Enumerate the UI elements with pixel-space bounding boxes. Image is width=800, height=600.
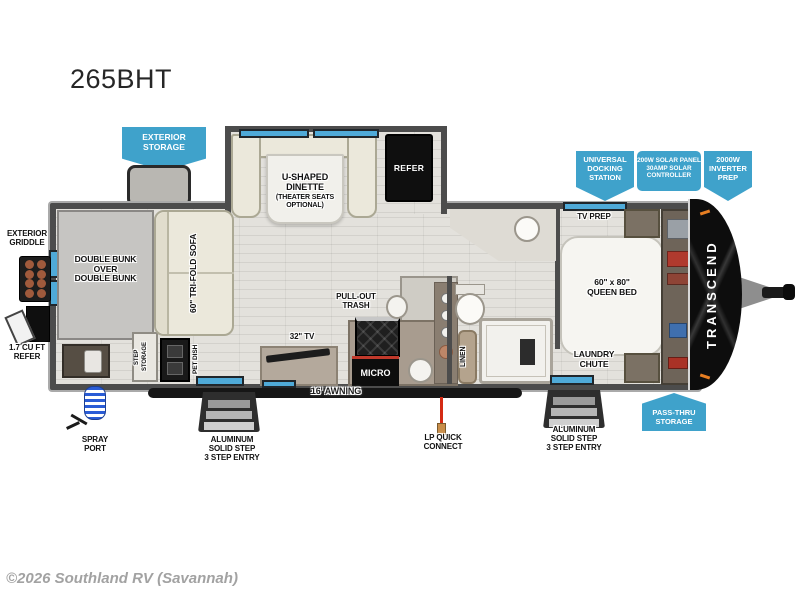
step-tread — [204, 422, 254, 430]
floorplan-265bht: 265BHT EXTERIOR STORAGE UNIVERSAL DOCKIN… — [0, 0, 800, 600]
hitch-coupler — [783, 284, 795, 300]
page-title: 265BHT — [70, 64, 172, 95]
sofa-label: 60" TRI-FOLD SOFA — [189, 214, 203, 332]
shower — [479, 318, 553, 384]
nightstand-bottom — [624, 353, 660, 383]
tv-32-label: 32" TV — [280, 333, 324, 342]
step-tread — [206, 411, 252, 419]
refer-label: REFER — [394, 163, 424, 173]
griddle-burner — [37, 260, 46, 269]
entry-step-left — [198, 392, 260, 432]
dinette-label: U-SHAPED DINETTE — [272, 172, 338, 192]
step-tread — [553, 397, 595, 405]
shower-glass — [486, 325, 546, 377]
bunk-dresser-item — [84, 350, 102, 373]
griddle-burner — [25, 270, 34, 279]
bath-sink — [514, 216, 540, 242]
callout-solar-panel: 200W SOLAR PANEL 30AMP SOLAR CONTROLLER — [637, 151, 701, 191]
lp-quick-connect-label: LP QUICK CONNECT — [414, 434, 472, 452]
tv-prep-label: TV PREP — [566, 213, 622, 222]
wardrobe-item-maroon — [667, 273, 689, 285]
microwave: MICRO — [352, 356, 399, 386]
nightstand-top — [624, 209, 660, 238]
kitchen-knob-strip — [434, 282, 458, 384]
step-tread — [551, 408, 597, 416]
cap-marker-bottom — [700, 374, 710, 380]
pull-out-trash-label: PULL-OUT TRASH — [330, 293, 382, 311]
dinette-window-left — [239, 129, 309, 138]
entry-step-right — [543, 390, 605, 428]
griddle-burner — [37, 279, 46, 288]
galley-window — [262, 380, 296, 388]
micro-label: MICRO — [361, 368, 391, 378]
callout-inverter-prep: 2000W INVERTER PREP — [704, 151, 752, 201]
mini-refer-label: 1.7 CU FT REFER — [0, 344, 54, 362]
door-window-right — [550, 375, 594, 385]
door-window-left — [196, 376, 244, 386]
copyright-watermark: ©2026 Southland RV (Savannah) — [6, 570, 238, 587]
lp-quick-connect-line — [440, 397, 443, 424]
step-entry-left-label: ALUMINUM SOLID STEP 3 STEP ENTRY — [200, 436, 264, 463]
refrigerator: REFER — [385, 134, 433, 202]
griddle-burner — [25, 279, 34, 288]
dinette-sub-label: (THEATER SEATS OPTIONAL) — [268, 194, 342, 210]
double-bunk-label: DOUBLE BUNK OVER DOUBLE BUNK — [58, 255, 153, 284]
pet-dish-cabinet — [160, 338, 190, 382]
griddle-burner — [37, 270, 46, 279]
dinette-seat-right — [347, 134, 377, 218]
bedroom-window — [563, 202, 627, 211]
griddle-burner — [37, 289, 46, 298]
sofa-back — [156, 212, 169, 334]
pull-out-trash — [386, 295, 408, 319]
step-tread — [208, 400, 250, 408]
pet-dish-bowl-bottom — [167, 362, 183, 375]
step-storage-label: STEP STORAGE — [134, 334, 156, 380]
queen-bed-label: 60" x 80" QUEEN BED — [562, 278, 662, 297]
step-entry-right-label: ALUMINUM SOLID STEP 3 STEP ENTRY — [542, 426, 606, 453]
spray-port-nozzle-tip — [66, 421, 80, 430]
griddle-burner — [25, 289, 34, 298]
exterior-storage-door — [127, 165, 191, 207]
dinette-seat-left — [231, 134, 261, 218]
exterior-griddle-label: EXTERIOR GRIDDLE — [0, 230, 54, 248]
brand-label: TRANSCEND — [704, 224, 722, 366]
cap-marker-top — [700, 210, 710, 216]
spray-port-coil — [84, 386, 106, 420]
bath-wall-left — [447, 276, 452, 384]
wardrobe-item-red2 — [668, 357, 688, 369]
exterior-griddle-icon — [19, 256, 51, 302]
linen-label: LINEN — [460, 334, 475, 380]
wardrobe-item-red — [667, 251, 689, 267]
wardrobe-item-gray — [667, 219, 689, 239]
shower-handle — [520, 339, 535, 365]
spray-port-label: SPRAY PORT — [70, 436, 120, 454]
pet-dish-bowl-top — [167, 345, 183, 358]
kitchen-sink — [408, 358, 433, 383]
griddle-burner — [25, 260, 34, 269]
dinette-window-right — [313, 129, 379, 138]
wardrobe-item-blue — [669, 323, 687, 338]
stove — [355, 317, 400, 357]
laundry-chute-label: LAUNDRY CHUTE — [566, 350, 622, 369]
awning-label: 16' AWNING — [300, 386, 372, 396]
callout-universal-docking-station: UNIVERSAL DOCKING STATION — [576, 151, 634, 201]
callout-pass-thru-storage: PASS-THRU STORAGE — [642, 393, 706, 431]
